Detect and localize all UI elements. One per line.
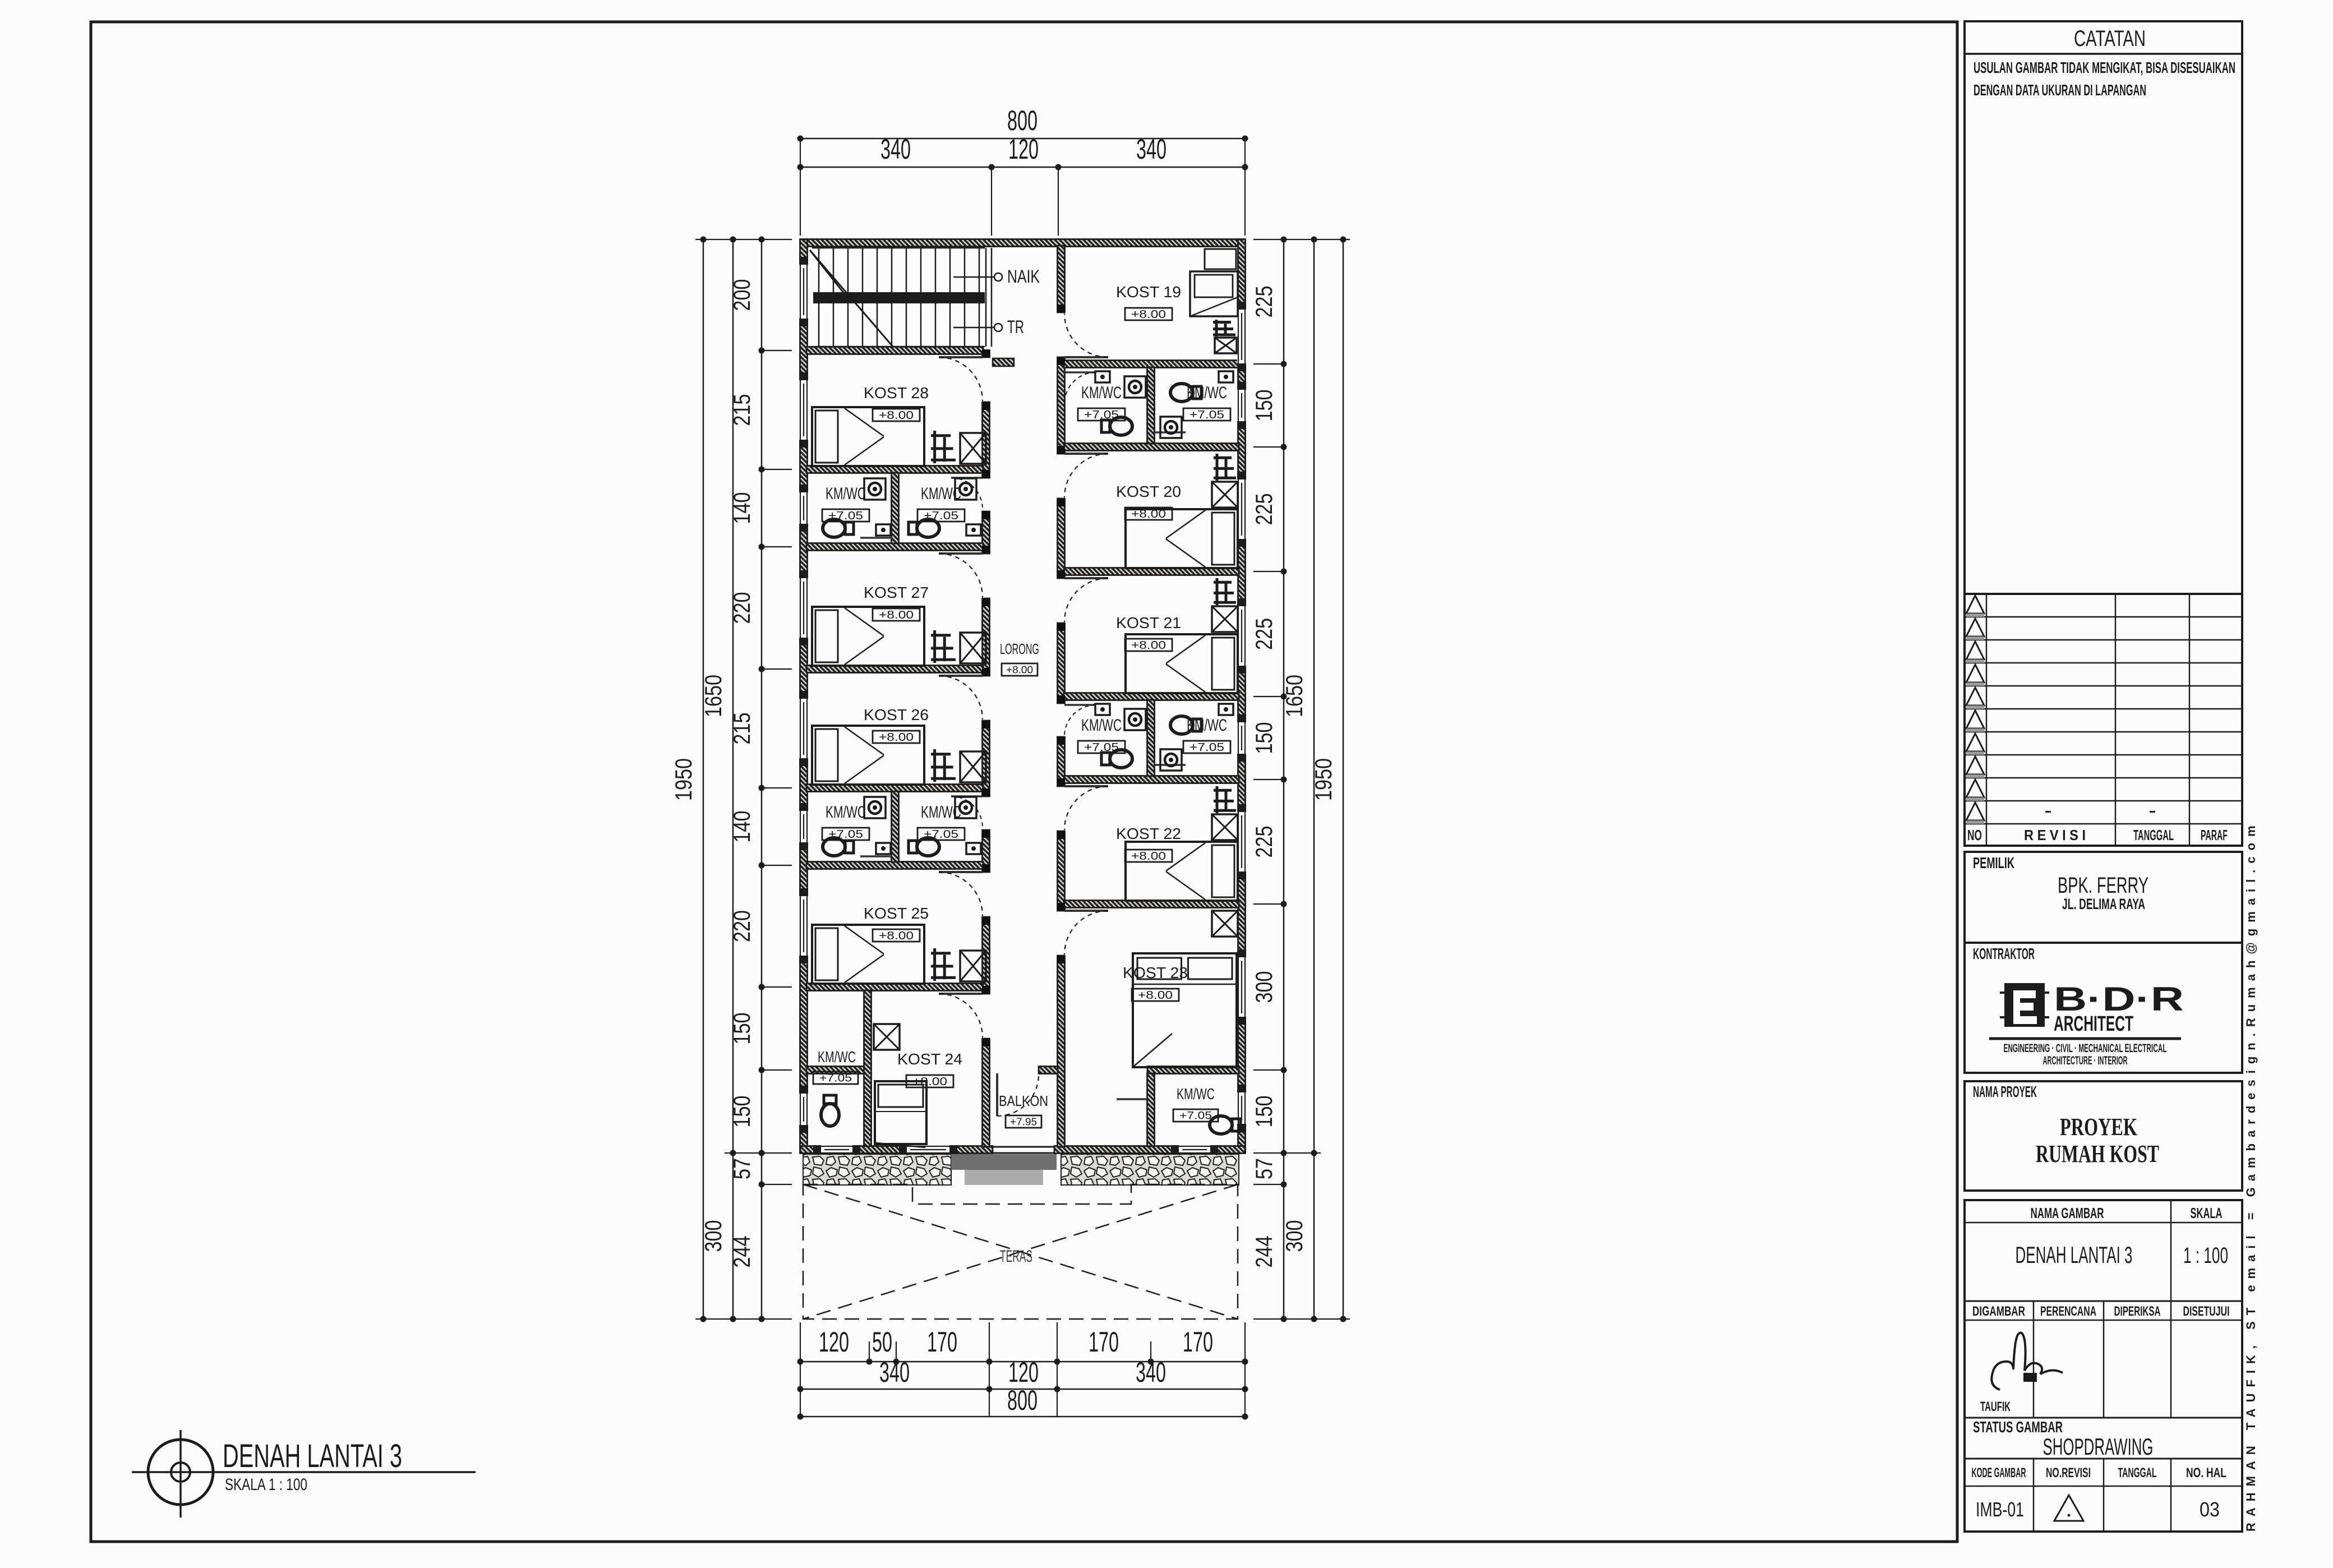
svg-text:R E V I S I: R E V I S I xyxy=(2024,827,2086,843)
svg-text:NO: NO xyxy=(1967,827,1982,843)
svg-text:NO. HAL: NO. HAL xyxy=(2186,1465,2226,1481)
svg-text:DIGAMBAR: DIGAMBAR xyxy=(1972,1304,2025,1319)
svg-text:ARCHITECTURE · INTERIOR: ARCHITECTURE · INTERIOR xyxy=(2043,1054,2128,1067)
svg-text:340: 340 xyxy=(879,1357,910,1388)
svg-text:DENAH LANTAI 3: DENAH LANTAI 3 xyxy=(2016,1242,2133,1268)
svg-text:KODE GAMBAR: KODE GAMBAR xyxy=(1972,1465,2026,1481)
svg-text:IMB-01: IMB-01 xyxy=(1976,1498,2024,1521)
svg-text:150: 150 xyxy=(1251,390,1277,422)
svg-text:300: 300 xyxy=(1251,971,1277,1003)
svg-text:KOST 22: KOST 22 xyxy=(1116,825,1181,842)
svg-text:TAUFIK: TAUFIK xyxy=(1980,1399,2011,1414)
svg-text:RUMAH KOST: RUMAH KOST xyxy=(2036,1140,2159,1168)
svg-text:800: 800 xyxy=(1007,105,1038,136)
svg-text:+8.00: +8.00 xyxy=(879,930,914,942)
svg-text:50: 50 xyxy=(872,1326,892,1358)
svg-text:57: 57 xyxy=(1251,1158,1277,1179)
svg-text:300: 300 xyxy=(1281,1220,1307,1252)
svg-text:KOST 26: KOST 26 xyxy=(864,706,929,723)
svg-text:KOST 21: KOST 21 xyxy=(1116,614,1181,631)
svg-text:KM/WC: KM/WC xyxy=(1081,384,1122,402)
svg-text:KOST 27: KOST 27 xyxy=(864,584,929,601)
svg-text:244: 244 xyxy=(1251,1236,1277,1268)
svg-text:+7.05: +7.05 xyxy=(819,1073,852,1085)
svg-text:TR: TR xyxy=(1007,317,1024,337)
svg-text:NAMA PROYEK: NAMA PROYEK xyxy=(1973,1083,2037,1100)
svg-text:TANGGAL: TANGGAL xyxy=(2133,827,2174,843)
svg-text:170: 170 xyxy=(1183,1326,1213,1358)
svg-text:SHOPDRAWING: SHOPDRAWING xyxy=(2043,1433,2154,1460)
svg-text:NAMA GAMBAR: NAMA GAMBAR xyxy=(2031,1205,2104,1221)
svg-text:BPK. FERRY: BPK. FERRY xyxy=(2058,873,2148,898)
svg-text:KONTRAKTOR: KONTRAKTOR xyxy=(1973,945,2035,962)
svg-text:+8.00: +8.00 xyxy=(879,731,914,744)
svg-text:KM/WC: KM/WC xyxy=(1177,1085,1215,1103)
svg-text:03: 03 xyxy=(2200,1498,2220,1521)
svg-text:KM/WC: KM/WC xyxy=(826,485,866,503)
svg-text:PROYEK: PROYEK xyxy=(2060,1113,2137,1141)
svg-text:DENGAN DATA UKURAN DI LAPANGAN: DENGAN DATA UKURAN DI LAPANGAN xyxy=(1974,81,2146,99)
svg-text:1950: 1950 xyxy=(670,758,697,801)
svg-text:+7.05: +7.05 xyxy=(1179,1110,1212,1122)
svg-text:170: 170 xyxy=(927,1326,957,1358)
svg-text:BALKON: BALKON xyxy=(999,1092,1048,1109)
svg-text:KOST 20: KOST 20 xyxy=(1116,483,1181,500)
svg-text:+8.00: +8.00 xyxy=(1131,850,1166,863)
svg-text:RAHMAN TAUFIK, ST email = Ga: RAHMAN TAUFIK, ST email = Gambardesign.R… xyxy=(2244,819,2258,1532)
svg-text:ARCHITECT: ARCHITECT xyxy=(2054,1012,2133,1036)
svg-text:1950: 1950 xyxy=(1310,758,1336,801)
svg-text:KOST 19: KOST 19 xyxy=(1116,283,1181,301)
svg-text:+8.00: +8.00 xyxy=(1006,664,1033,675)
svg-text:120: 120 xyxy=(1008,133,1039,165)
svg-text:PERENCANA: PERENCANA xyxy=(2040,1304,2096,1319)
svg-text:+8.00: +8.00 xyxy=(1131,639,1166,652)
svg-text:KM/WC: KM/WC xyxy=(818,1048,856,1066)
svg-text:340: 340 xyxy=(1136,133,1166,165)
svg-text:PEMILIK: PEMILIK xyxy=(1973,854,2014,871)
svg-text:USULAN GAMBAR TIDAK MENGIKAT,: USULAN GAMBAR TIDAK MENGIKAT, BISA DISES… xyxy=(1974,59,2235,76)
svg-text:+7.95: +7.95 xyxy=(1010,1116,1037,1127)
svg-text:+7.05: +7.05 xyxy=(1189,409,1224,421)
svg-text:KM/WC: KM/WC xyxy=(1081,716,1122,735)
svg-text:LORONG: LORONG xyxy=(1000,640,1039,657)
svg-text:225: 225 xyxy=(1251,286,1277,318)
svg-text:120: 120 xyxy=(819,1326,849,1358)
svg-text:-: - xyxy=(2148,798,2156,823)
svg-text:+7.05: +7.05 xyxy=(1189,741,1224,754)
svg-text:+8.00: +8.00 xyxy=(879,609,914,621)
svg-text:SKALA 1 : 100: SKALA 1 : 100 xyxy=(225,1475,307,1494)
svg-text:800: 800 xyxy=(1007,1385,1038,1416)
svg-text:225: 225 xyxy=(1251,618,1277,650)
svg-text:NAIK: NAIK xyxy=(1007,266,1040,287)
svg-text:TANGGAL: TANGGAL xyxy=(2118,1465,2157,1481)
svg-text:DISETUJUI: DISETUJUI xyxy=(2183,1304,2230,1319)
svg-text:SKALA: SKALA xyxy=(2191,1205,2223,1221)
svg-text:225: 225 xyxy=(1251,494,1277,525)
svg-text:-: - xyxy=(2044,798,2051,823)
svg-text:JL. DELIMA RAYA: JL. DELIMA RAYA xyxy=(2062,896,2145,912)
svg-text:DENAH LANTAI 3: DENAH LANTAI 3 xyxy=(223,1438,402,1474)
svg-text:120: 120 xyxy=(1008,1357,1039,1388)
svg-text:+8.00: +8.00 xyxy=(1138,989,1173,1002)
svg-text:1650: 1650 xyxy=(1281,675,1307,717)
svg-text:KOST 28: KOST 28 xyxy=(864,384,929,402)
svg-text:NO.REVISI: NO.REVISI xyxy=(2046,1465,2091,1481)
svg-text:+8.00: +8.00 xyxy=(1131,308,1166,321)
svg-text:150: 150 xyxy=(1251,722,1277,754)
svg-text:DIPERIKSA: DIPERIKSA xyxy=(2114,1304,2161,1319)
svg-text:1 : 100: 1 : 100 xyxy=(2183,1243,2228,1268)
svg-text:PARAF: PARAF xyxy=(2201,827,2228,843)
svg-text:ENGINEERING · CIVIL · MECHANIC: ENGINEERING · CIVIL · MECHANICAL ELECTRI… xyxy=(2004,1042,2167,1055)
svg-text:225: 225 xyxy=(1251,826,1277,858)
svg-text:KOST 24: KOST 24 xyxy=(897,1050,962,1068)
svg-text:TERAS: TERAS xyxy=(1000,1247,1032,1266)
svg-text:340: 340 xyxy=(880,133,911,165)
svg-text:KOST 25: KOST 25 xyxy=(864,905,929,922)
svg-text:KM/WC: KM/WC xyxy=(826,803,866,822)
svg-text:CATATAN: CATATAN xyxy=(2074,26,2146,51)
svg-text:170: 170 xyxy=(1089,1326,1119,1358)
svg-text:+8.00: +8.00 xyxy=(879,409,914,422)
svg-text:150: 150 xyxy=(1251,1096,1277,1128)
